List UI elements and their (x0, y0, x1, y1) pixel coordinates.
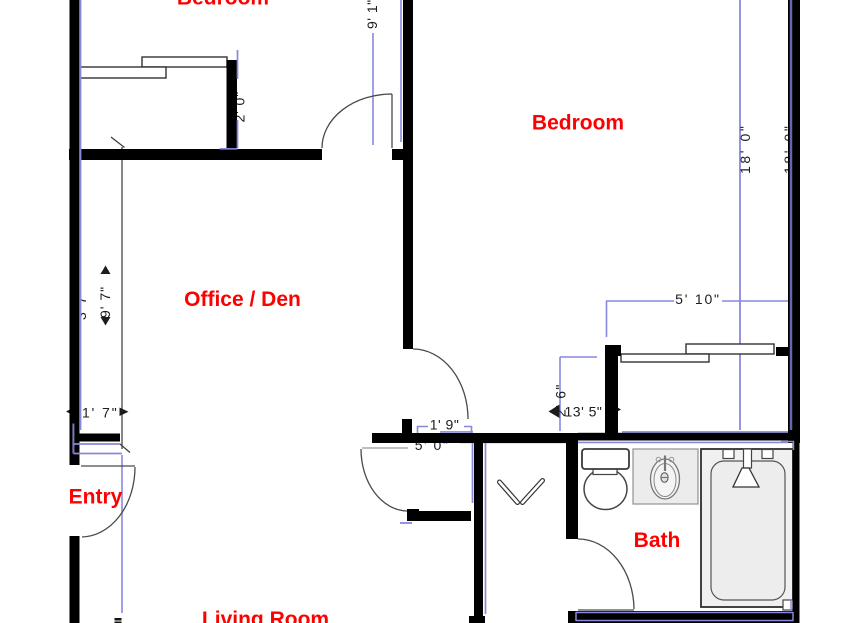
svg-text:Bedroom: Bedroom (177, 0, 269, 10)
svg-text:Office / Den: Office / Den (184, 288, 301, 311)
svg-text:13' 5": 13' 5" (565, 404, 603, 420)
svg-text:18' 0": 18' 0" (737, 124, 753, 175)
svg-text:1' 7": 1' 7" (82, 405, 119, 421)
svg-text:1' 9": 1' 9" (430, 417, 460, 433)
svg-text:Living Room: Living Room (202, 608, 329, 623)
svg-text:Bath: Bath (634, 529, 681, 552)
svg-text:9' 1": 9' 1" (364, 0, 380, 29)
svg-text:Entry: Entry (69, 486, 123, 509)
svg-text:Bedroom: Bedroom (532, 112, 624, 135)
svg-text:5' 10": 5' 10" (675, 291, 721, 307)
svg-text:2' 6": 2' 6" (553, 383, 569, 417)
svg-text:9' 7": 9' 7" (97, 286, 113, 318)
